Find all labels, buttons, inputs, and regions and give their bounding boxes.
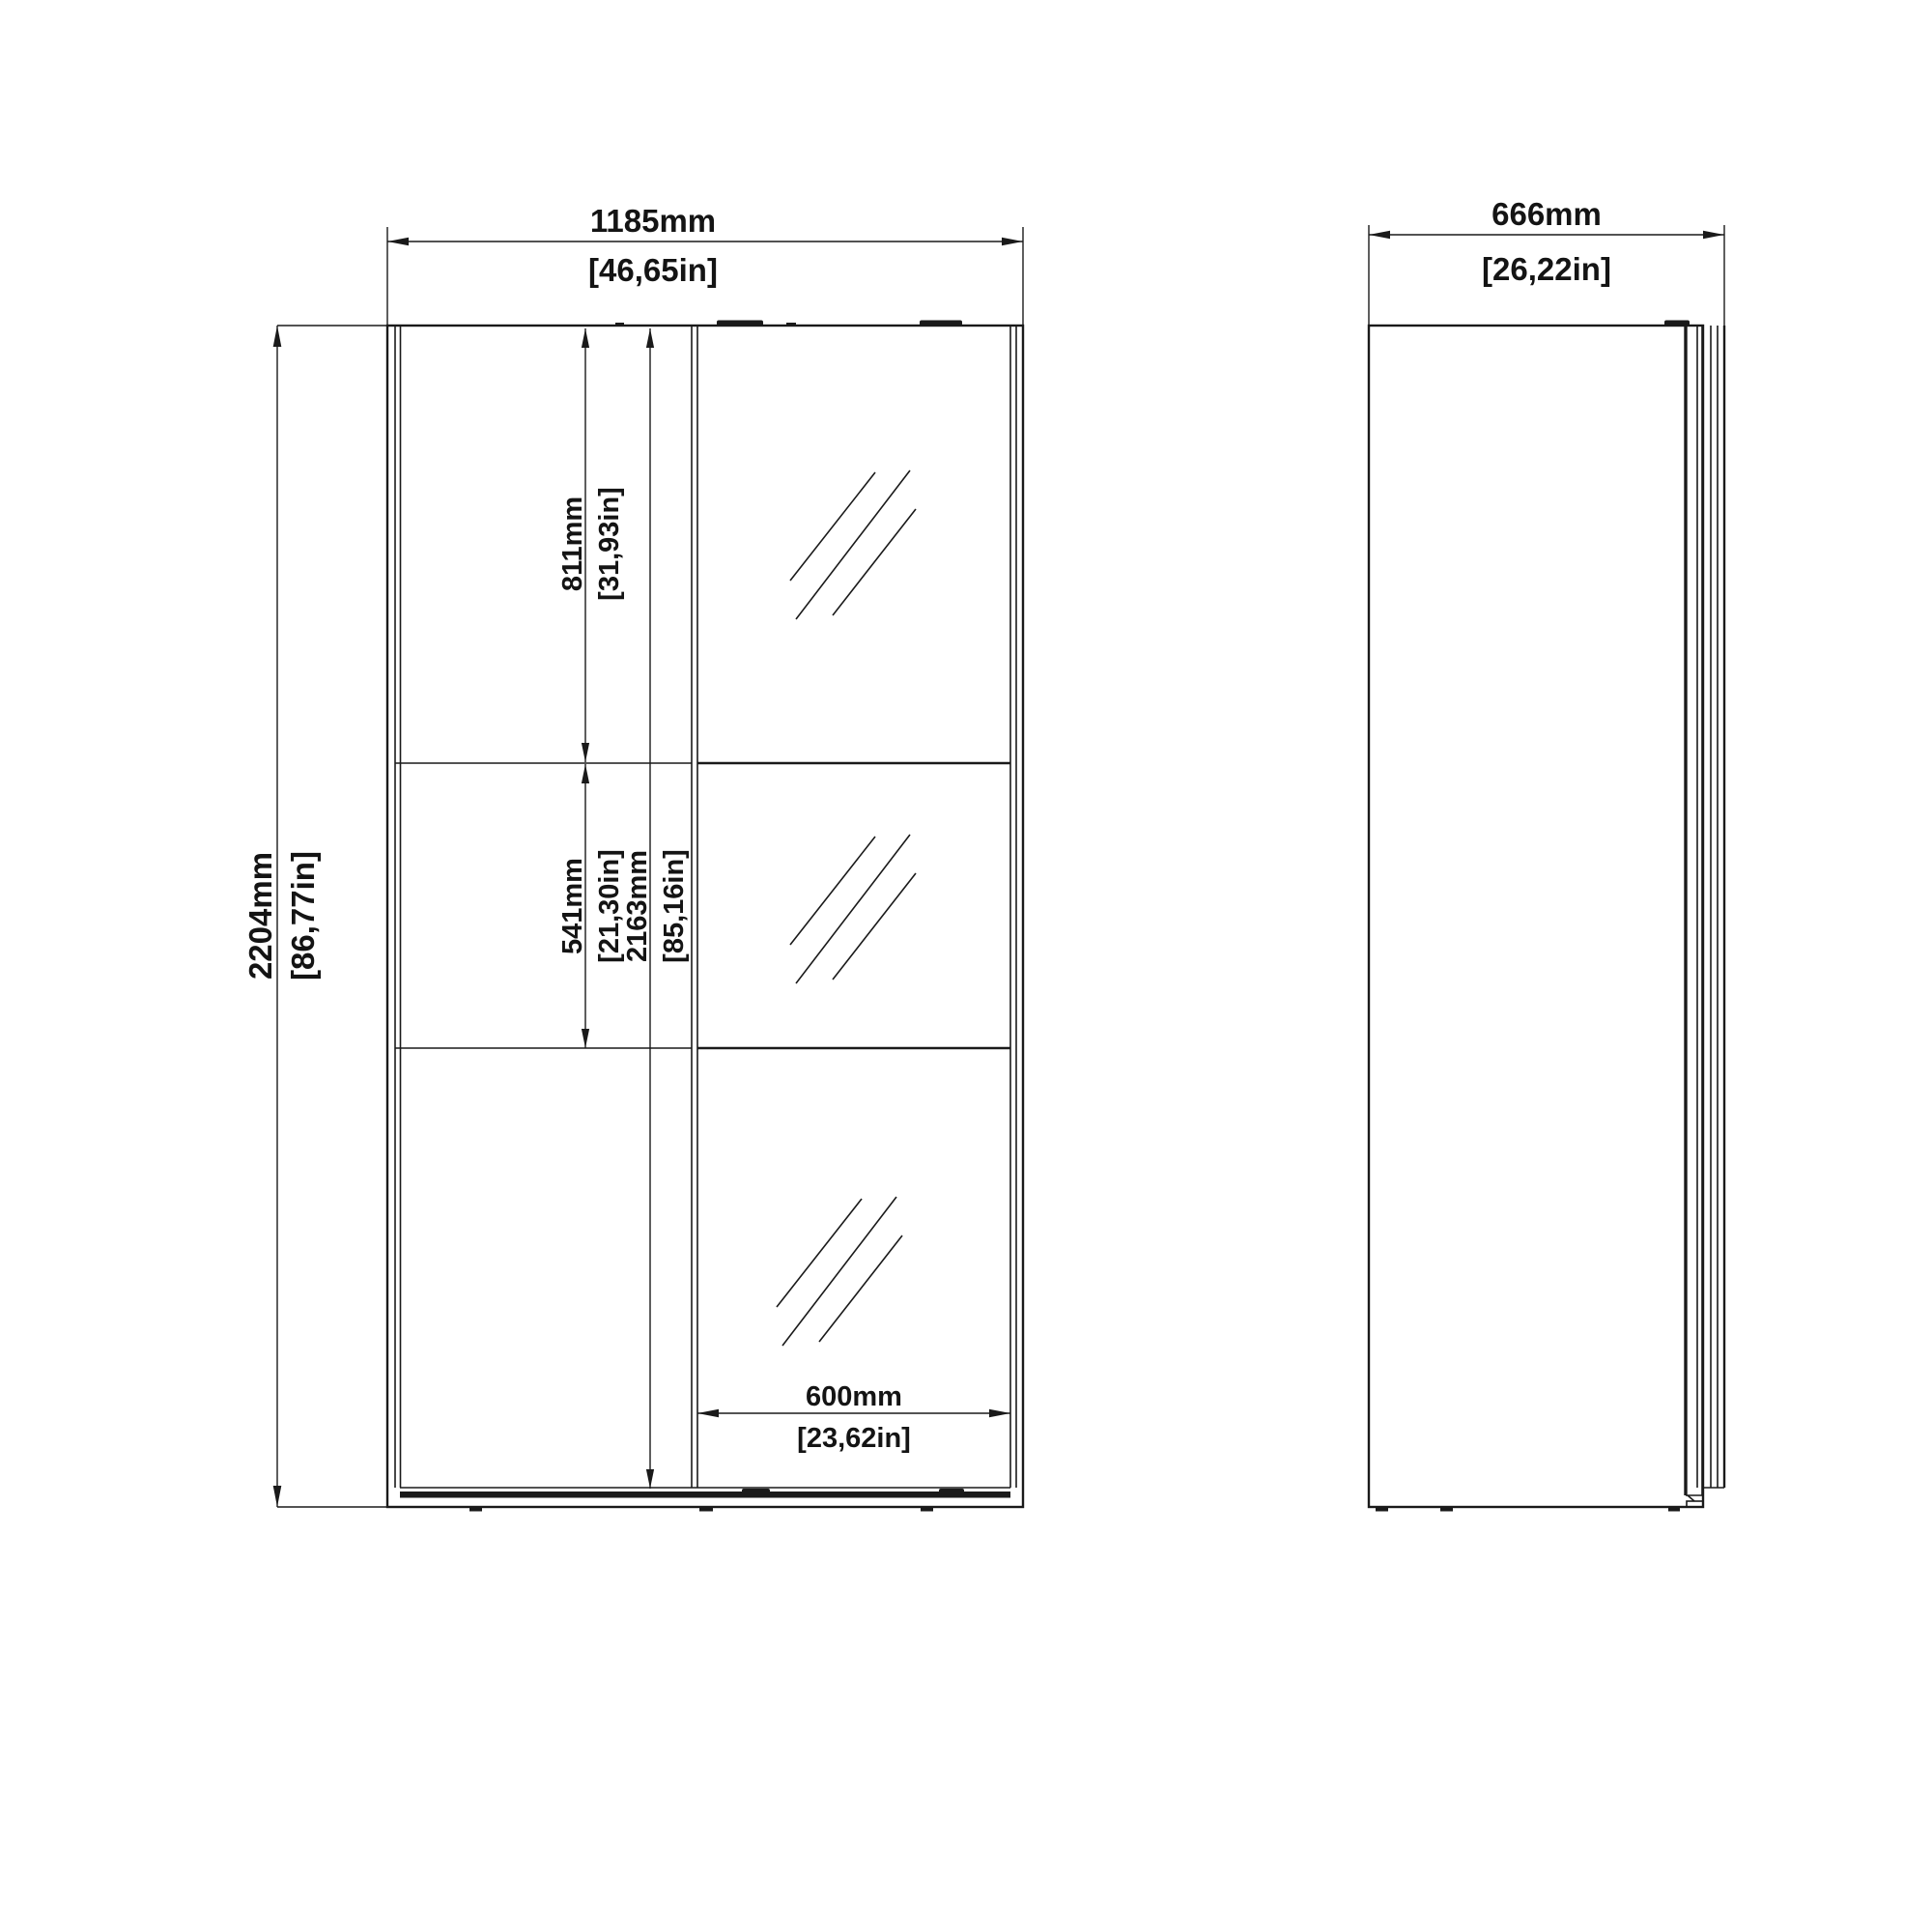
wardrobe-dimension-drawing: 1185mm [46,65in] 2204mm [86,77in] 811mm … [0, 0, 1932, 1932]
dim-label-in: [46,65in] [588, 252, 718, 288]
dim-middle-section: 541mm [21,30in] [557, 764, 625, 1048]
arrowhead [1369, 231, 1390, 240]
arrowhead [1002, 238, 1023, 246]
foot-glide [1440, 1507, 1453, 1512]
door-guide-foot [1686, 1495, 1703, 1507]
dim-label-in: [26,22in] [1482, 251, 1611, 287]
arrowhead [582, 764, 589, 783]
dim-label-mm: 811mm [557, 497, 588, 591]
arrowhead [989, 1409, 1010, 1418]
foot-glide [1376, 1507, 1388, 1512]
top-roller-detail [717, 321, 763, 327]
dim-front-width: 1185mm [46,65in] [387, 203, 1023, 326]
drawing-page: 1185mm [46,65in] 2204mm [86,77in] 811mm … [0, 0, 1932, 1932]
foot-glide [921, 1507, 933, 1512]
arrowhead [582, 743, 589, 762]
dim-label-in: [85,16in] [659, 849, 690, 963]
mirror-door [697, 470, 1010, 1346]
top-roller-detail [615, 323, 624, 326]
dim-front-height: 2204mm [86,77in] [242, 326, 387, 1507]
cabinet-outline [387, 326, 1023, 1507]
arrowhead [387, 238, 409, 246]
arrowhead [273, 1486, 282, 1507]
bottom-track-rail [400, 1492, 1010, 1498]
top-roller-detail [1664, 321, 1690, 327]
dim-label-mm: 600mm [806, 1381, 902, 1412]
foot-glide [1668, 1507, 1680, 1512]
dim-label-mm: 541mm [557, 858, 588, 954]
dim-label-mm: 666mm [1492, 196, 1602, 232]
side-view: 666mm [26,22in] [1369, 196, 1724, 1512]
foot-glide [699, 1507, 713, 1512]
top-roller-detail [920, 321, 962, 327]
dim-top-section: 811mm [31,93in] [557, 328, 625, 762]
front-cabinet [387, 321, 1023, 1512]
dim-label-in: [31,93in] [594, 487, 625, 601]
dim-door-width: 600mm [23,62in] [697, 1381, 1010, 1454]
arrowhead [1703, 231, 1724, 240]
arrowhead [697, 1409, 719, 1418]
front-view: 1185mm [46,65in] 2204mm [86,77in] 811mm … [242, 203, 1023, 1512]
side-cabinet [1369, 321, 1724, 1512]
dim-label-in: [23,62in] [797, 1423, 911, 1454]
mirror-glass-icon [790, 835, 916, 983]
arrowhead [273, 326, 282, 347]
side-body-outline [1369, 326, 1703, 1507]
arrowhead [582, 1029, 589, 1048]
mirror-glass-icon [777, 1197, 902, 1346]
mirror-glass-icon [790, 470, 916, 619]
foot-glide [469, 1507, 482, 1512]
arrowhead [582, 328, 589, 348]
arrowhead [646, 1469, 654, 1489]
dim-label-mm: 2163mm [622, 850, 653, 962]
dim-interior-height: 2163mm [85,16in] [622, 328, 690, 1489]
arrowhead [646, 328, 654, 348]
dim-side-depth: 666mm [26,22in] [1369, 196, 1724, 326]
bottom-roller-detail [939, 1489, 964, 1496]
top-roller-detail [786, 323, 796, 326]
dim-label-in: [21,30in] [594, 849, 625, 963]
dim-label-in: [86,77in] [285, 851, 321, 980]
bottom-roller-detail [742, 1489, 770, 1496]
dim-label-mm: 1185mm [590, 203, 716, 239]
dim-label-mm: 2204mm [242, 852, 278, 980]
